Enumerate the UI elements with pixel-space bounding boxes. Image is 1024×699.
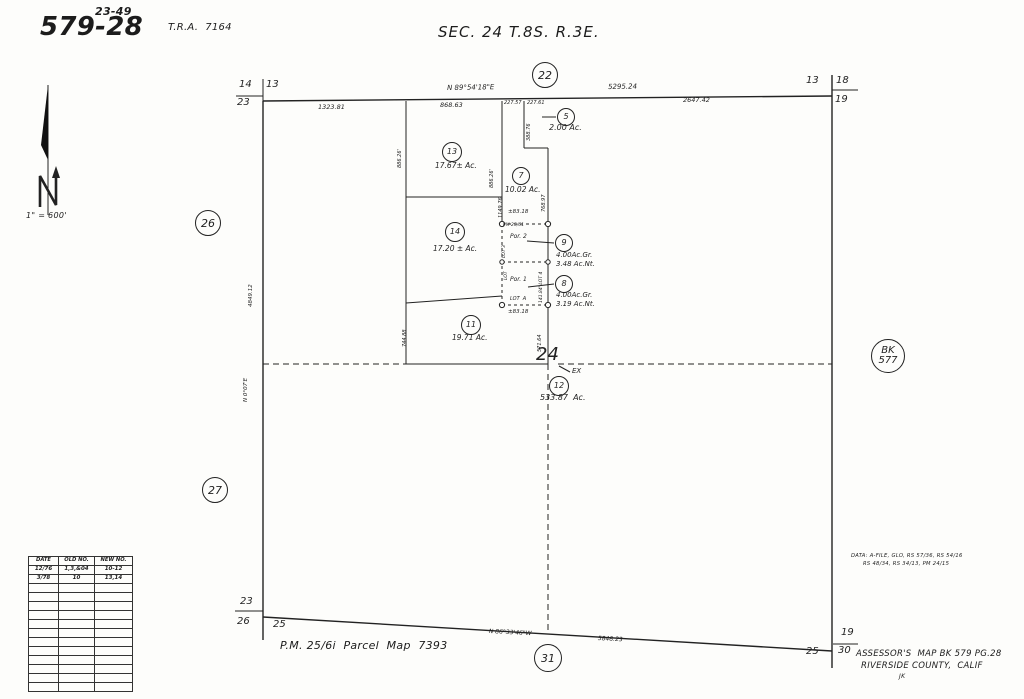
revision-cell (59, 638, 95, 647)
revision-cell: 10 (59, 575, 95, 584)
revision-cell (59, 593, 95, 602)
revision-col-header: OLD NO. (59, 557, 95, 566)
book-577: BK 577 (871, 339, 905, 373)
revision-cell (29, 647, 59, 656)
corner-tr-19: 19 (835, 95, 848, 105)
revision-cell (29, 602, 59, 611)
corner-bl-26: 26 (237, 617, 250, 627)
revision-row (29, 629, 133, 638)
dim-744-88: 744.88 (403, 330, 408, 348)
assessor-title-line1: ASSESSOR'S MAP BK 579 PG.28 (856, 649, 1002, 659)
revision-cell (95, 584, 133, 593)
revision-row (29, 683, 133, 692)
dim-83-18-bottom: ±83.18 (508, 310, 528, 316)
revision-col-header: DATE (29, 557, 59, 566)
parcel-9-acreage-gross: 4.00Ac.Gr. (556, 252, 592, 259)
revision-cell (95, 629, 133, 638)
dim-5848-23: 5848.23 (598, 636, 623, 643)
data-note-line1: DATA: A-FILE, GLO, RS 57/36, RS 54/16 (851, 553, 963, 559)
revision-row (29, 584, 133, 593)
corner-tl-13: 13 (266, 80, 279, 90)
revision-cell (95, 665, 133, 674)
revision-cell (29, 593, 59, 602)
parcel-11: 11 (461, 315, 481, 335)
revision-cell (59, 656, 95, 665)
lot-label: LOT (505, 271, 510, 280)
dim-886-26-east: 886.26' (490, 169, 495, 188)
corner-tl-23: 23 (237, 98, 250, 108)
parcel-9-acreage-net: 3.48 Ac.Nt. (556, 261, 595, 268)
revision-cell (59, 674, 95, 683)
revision-cell (59, 683, 95, 692)
dim-1149-76: 1149.76 (499, 197, 504, 218)
bearing-north-line: N 89°54'18"E (447, 84, 494, 92)
revision-row (29, 638, 133, 647)
revision-cell (95, 593, 133, 602)
assessor-title-line2: RIVERSIDE COUNTY, CALIF (861, 661, 983, 671)
section-27: 27 (202, 477, 228, 503)
dim-5295-24: 5295.24 (608, 83, 637, 91)
corner-tr-18: 18 (836, 76, 849, 86)
quarter-corner-24: 24 (536, 346, 559, 364)
parcel-13-acreage: 17.67± Ac. (435, 162, 477, 170)
revision-cell (59, 620, 95, 629)
revision-row: 3/781013,14 (29, 575, 133, 584)
section-31: 31 (534, 644, 562, 672)
parcel-8: 8 (555, 275, 573, 293)
revision-cell (29, 629, 59, 638)
revision-cell (95, 611, 133, 620)
revision-cell (29, 656, 59, 665)
revision-cell (29, 674, 59, 683)
dim-868-63: 868.63 (440, 102, 463, 109)
revision-cell: 3/78 (29, 575, 59, 584)
revision-row (29, 665, 133, 674)
revision-cell (29, 584, 59, 593)
revision-row (29, 620, 133, 629)
revision-row: 12/761,3,&0410-12 (29, 566, 133, 575)
revision-table: DATEOLD NO.NEW NO.12/761,3,&0410-123/781… (28, 556, 133, 692)
corner-bl-25: 25 (273, 620, 286, 630)
dim-388-76: 388.76 (527, 124, 532, 142)
corner-br-30: 30 (838, 646, 851, 656)
dim-1323-81: 1323.81 (318, 104, 345, 111)
revision-cell: 10-12 (95, 566, 133, 575)
revision-cell (95, 674, 133, 683)
section-26: 26 (195, 210, 221, 236)
parcel-5: 5 (557, 108, 575, 126)
north-arrow-icon (40, 85, 60, 215)
parcel-8-acreage-gross: 4.00Ac.Gr. (556, 292, 592, 299)
parcel-13: 13 (442, 142, 462, 162)
parcel-12-ex: EX (572, 368, 581, 375)
lot-a-label: LOT A (510, 297, 526, 302)
parcel-14: 14 (445, 222, 465, 242)
revision-cell (95, 602, 133, 611)
parcel-11-acreage: 19.71 Ac. (452, 334, 488, 342)
corner-bl-23: 23 (240, 597, 253, 607)
revision-cell: 1,3,&04 (59, 566, 95, 575)
revision-cell (95, 647, 133, 656)
revision-cell (59, 584, 95, 593)
corner-tr-13: 13 (806, 76, 819, 86)
dim-227-61: 227.61 (527, 101, 545, 106)
drafter-initials: JK (899, 673, 905, 680)
revision-cell (95, 683, 133, 692)
dim-4849-12: 4849.12 (249, 284, 255, 307)
revision-cell (29, 683, 59, 692)
parcel-7-acreage: 10.02 Ac. (505, 186, 541, 194)
revision-cell (29, 665, 59, 674)
revision-cell (59, 602, 95, 611)
revision-cell (29, 638, 59, 647)
revision-cell (59, 647, 95, 656)
revision-cell (59, 611, 95, 620)
revision-row (29, 593, 133, 602)
parcel-7: 7 (512, 167, 530, 185)
revision-cell (95, 656, 133, 665)
revision-row (29, 611, 133, 620)
data-note-line2: RS 48/34, RS 34/13, PM 24/15 (863, 561, 949, 567)
por-2-label: Por. 2 (510, 234, 527, 240)
revision-row (29, 674, 133, 683)
lot-3-label: LOT 3 (503, 245, 508, 258)
section-title: SEC. 24 T.8S. R.3E. (438, 23, 600, 41)
parcel-9: 9 (555, 234, 573, 252)
dim-83-18-top: ±83.18 (508, 210, 528, 216)
revision-row (29, 656, 133, 665)
dim-227-57: 227.57 (504, 101, 522, 106)
corner-br-19: 19 (841, 628, 854, 638)
scale-note: 1" = 600' (26, 211, 67, 220)
corner-tl-14: 14 (239, 80, 252, 90)
dim-886-26-west: 886.26' (398, 149, 403, 168)
bearing-west-line: N 0°07'E (244, 378, 250, 402)
parcel-8-acreage-net: 3.19 Ac.Nt. (556, 301, 595, 308)
section-corner-22: 22 (532, 62, 558, 88)
corner-br-25: 25 (806, 647, 819, 657)
parcel-14-acreage: 17.20 ± Ac. (433, 245, 477, 253)
revision-cell (95, 620, 133, 629)
parcel-map-ref: P.M. 25/6i Parcel Map 7393 (280, 639, 448, 652)
revision-cell (59, 629, 95, 638)
assessor-map-page: 23-49 579-28 T.R.A. 7164 SEC. 24 T.8S. R… (0, 0, 1024, 699)
revision-col-header: NEW NO. (95, 557, 133, 566)
parcel-12: 12 (549, 376, 569, 396)
revision-cell: 13,14 (95, 575, 133, 584)
dim-2647-42: 2647.42 (683, 97, 710, 104)
tra-label: T.R.A. 7164 (168, 22, 232, 33)
revision-cell (29, 620, 59, 629)
revision-cell: 12/76 (29, 566, 59, 575)
dim-768-97: 768.97 (542, 195, 547, 213)
revision-row (29, 647, 133, 656)
dim-141-84-lot-4: 141.84' LOT 4 (540, 272, 545, 303)
revision-cell (59, 665, 95, 674)
revision-row (29, 602, 133, 611)
pm-25-61-inner: PM 25/61 (503, 224, 524, 229)
revision-cell (95, 638, 133, 647)
revision-cell (29, 611, 59, 620)
por-1-label: Por. 1 (510, 277, 527, 283)
map-number: 579-28 (40, 12, 143, 42)
